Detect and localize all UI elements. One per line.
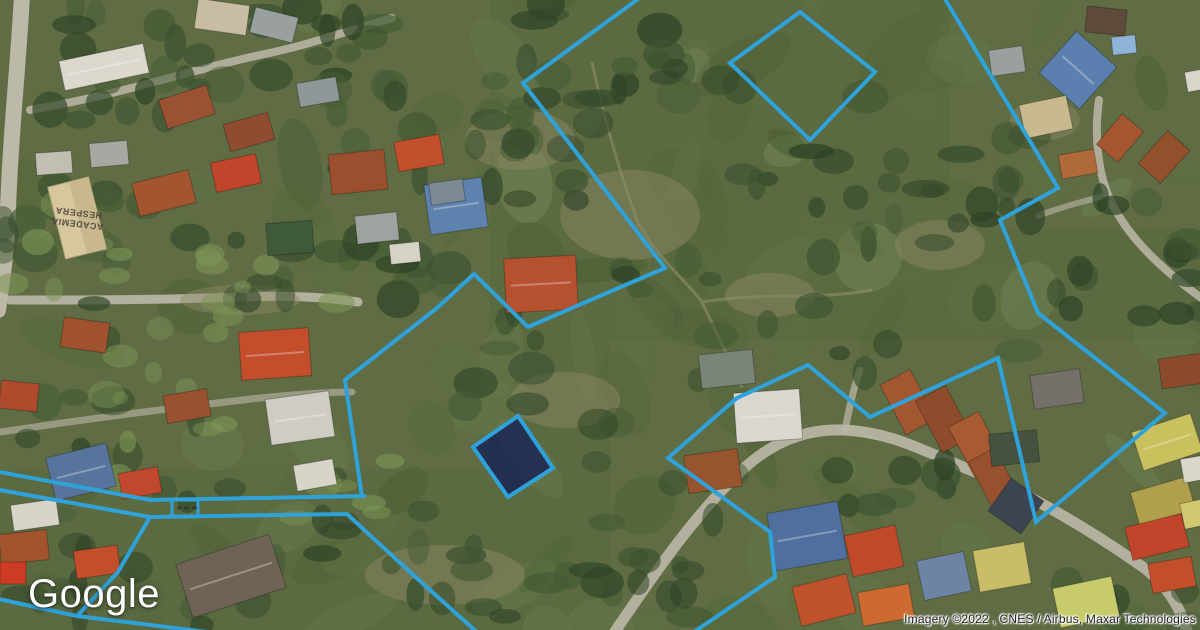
roof-rect <box>328 149 388 195</box>
tree-blob <box>249 59 293 92</box>
tree-blob <box>789 144 835 160</box>
tree-blob <box>342 4 364 41</box>
tree-blob <box>276 279 296 312</box>
palm-blob <box>279 510 312 526</box>
palm-blob <box>45 277 64 301</box>
tree-blob <box>319 14 335 47</box>
roof <box>265 391 335 445</box>
palm-blob <box>363 506 392 520</box>
roof <box>60 317 110 353</box>
tree-blob <box>885 204 903 234</box>
tree-blob <box>822 457 854 484</box>
tree-blob <box>995 339 1042 363</box>
tree-blob <box>465 130 486 160</box>
tree-blob <box>807 239 840 275</box>
tree-blob <box>1067 256 1093 286</box>
tree-blob <box>573 108 613 139</box>
tree-blob <box>336 44 361 63</box>
tree-blob <box>527 330 544 351</box>
tree-blob <box>970 212 1001 228</box>
tree-blob <box>647 51 671 72</box>
roof-rect <box>89 140 129 167</box>
roof <box>389 241 421 264</box>
tree-blob <box>618 547 649 567</box>
roof <box>355 212 400 244</box>
roof-rect <box>35 151 72 175</box>
tree-blob <box>757 310 778 339</box>
palm-blob <box>234 280 251 293</box>
tree-blob <box>853 493 897 516</box>
roof <box>1158 353 1200 389</box>
roof-rect <box>1085 6 1127 36</box>
map-viewport[interactable]: ACADEMIA HESPERA Google Imagery ©2022 , … <box>0 0 1200 630</box>
tree-blob <box>1047 279 1066 307</box>
roof <box>973 542 1032 592</box>
roof-rect <box>0 530 49 565</box>
satellite-imagery: ACADEMIA HESPERA <box>0 0 1200 630</box>
tree-blob <box>694 322 738 350</box>
google-logo[interactable]: Google <box>28 574 160 614</box>
tree-blob <box>843 185 868 210</box>
tree-blob <box>748 169 766 200</box>
tree-blob <box>808 197 825 218</box>
roof <box>328 149 388 195</box>
tree-blob <box>382 555 401 575</box>
palm-blob <box>318 292 355 313</box>
tree-blob <box>699 272 722 287</box>
tree-blob <box>578 409 619 440</box>
tree-blob <box>795 293 834 319</box>
palm-blob <box>195 244 225 265</box>
tree-blob <box>883 148 909 174</box>
roof <box>1085 6 1127 36</box>
tree-blob <box>144 9 176 41</box>
palm-blob <box>112 391 128 404</box>
roof-rect <box>684 448 743 493</box>
roof-rect <box>973 542 1032 592</box>
tree-blob <box>407 501 439 522</box>
tree-blob <box>383 81 406 112</box>
tree-blob <box>902 180 950 198</box>
tree-blob <box>563 190 589 211</box>
tree-blob <box>183 44 215 68</box>
roof <box>0 380 39 412</box>
roof <box>1030 369 1084 410</box>
tree-blob <box>656 580 682 612</box>
tree-blob <box>580 567 624 598</box>
tree-blob <box>227 232 245 249</box>
tree-blob <box>214 478 246 498</box>
roof <box>429 179 466 206</box>
tree-blob <box>588 514 625 531</box>
tree-blob <box>115 97 140 125</box>
palm-blob <box>103 344 138 367</box>
roof <box>35 151 72 175</box>
tree-blob <box>304 47 332 65</box>
palm-blob <box>201 293 235 312</box>
roof <box>767 501 848 571</box>
tree-blob <box>947 213 968 232</box>
palm-blob <box>22 229 54 255</box>
tree-blob <box>915 234 954 251</box>
roof-rect <box>60 317 110 353</box>
tree-blob <box>448 391 482 421</box>
roof-rect <box>1158 353 1200 389</box>
tree-blob <box>176 65 195 88</box>
tree-blob <box>878 173 901 193</box>
tree-blob <box>312 505 333 534</box>
tree-blob <box>177 490 197 513</box>
tree-blob <box>78 296 111 311</box>
roof <box>684 448 743 493</box>
roof <box>266 220 314 255</box>
tree-blob <box>555 169 588 193</box>
palm-blob <box>147 317 174 341</box>
palm-blob <box>253 255 279 276</box>
tree-blob <box>64 111 96 129</box>
roof-rect <box>1030 369 1084 410</box>
tree-blob <box>829 346 850 360</box>
tree-blob <box>465 535 483 560</box>
tree-blob <box>480 341 520 356</box>
roof <box>698 349 755 388</box>
tree-blob <box>873 330 902 358</box>
roof <box>1111 35 1137 55</box>
tree-blob <box>702 503 723 537</box>
roof-rect <box>355 212 400 244</box>
tree-blob <box>993 165 1020 201</box>
tree-blob <box>502 128 535 159</box>
tree-blob <box>451 559 494 582</box>
tree-blob <box>852 221 878 243</box>
tree-blob <box>675 243 702 277</box>
roof-rect <box>698 349 755 388</box>
tree-blob <box>95 192 124 213</box>
roof-rect <box>1111 35 1137 55</box>
tree-blob <box>408 529 430 565</box>
palm-blob <box>193 422 224 436</box>
roof-rect <box>389 241 421 264</box>
tree-blob <box>504 190 537 207</box>
palm-blob <box>145 362 162 384</box>
roof <box>0 562 26 584</box>
tree-blob <box>934 448 955 480</box>
roof-rect <box>0 562 26 584</box>
roof-rect <box>1184 68 1200 92</box>
tree-blob <box>852 356 877 390</box>
tree-blob <box>1127 305 1161 326</box>
tree-blob <box>575 89 621 107</box>
tree-blob <box>1158 302 1194 325</box>
tree-blob <box>489 609 521 624</box>
tree-blob <box>938 146 985 163</box>
tree-blob <box>506 392 549 415</box>
palm-blob <box>119 431 136 453</box>
tree-blob <box>582 451 612 473</box>
tree-blob <box>972 285 996 322</box>
tree-blob <box>15 429 40 449</box>
tree-blob <box>888 456 921 485</box>
palm-blob <box>203 323 229 342</box>
roof <box>0 530 49 565</box>
tree-blob <box>150 56 180 94</box>
tree-blob <box>32 92 68 128</box>
tree-blob <box>659 470 687 496</box>
tree-blob <box>627 570 649 595</box>
palm-blob <box>99 268 130 284</box>
palm-blob <box>106 248 133 261</box>
tree-blob <box>672 561 705 581</box>
roof <box>504 255 579 313</box>
roof <box>238 328 311 381</box>
tree-blob <box>531 7 569 21</box>
tree-blob <box>612 57 638 76</box>
tree-blob <box>1092 183 1109 212</box>
roof <box>89 140 129 167</box>
roof-rect <box>0 380 39 412</box>
tree-blob <box>303 545 341 562</box>
tree-blob <box>481 72 508 90</box>
tree-blob <box>535 60 572 90</box>
tree-blob <box>470 109 509 130</box>
roof-rect <box>429 179 466 206</box>
tree-blob <box>507 106 532 122</box>
tree-blob <box>1131 188 1162 216</box>
tree-blob <box>59 389 88 406</box>
tree-blob <box>52 15 96 34</box>
map-attribution: Imagery ©2022 , CNES / Airbus, Maxar Tec… <box>904 612 1196 626</box>
tree-blob <box>508 352 555 385</box>
roof-rect <box>266 220 314 255</box>
roof <box>1184 68 1200 92</box>
roof <box>988 46 1025 76</box>
palm-blob <box>376 454 405 469</box>
roof-rect <box>988 46 1025 76</box>
